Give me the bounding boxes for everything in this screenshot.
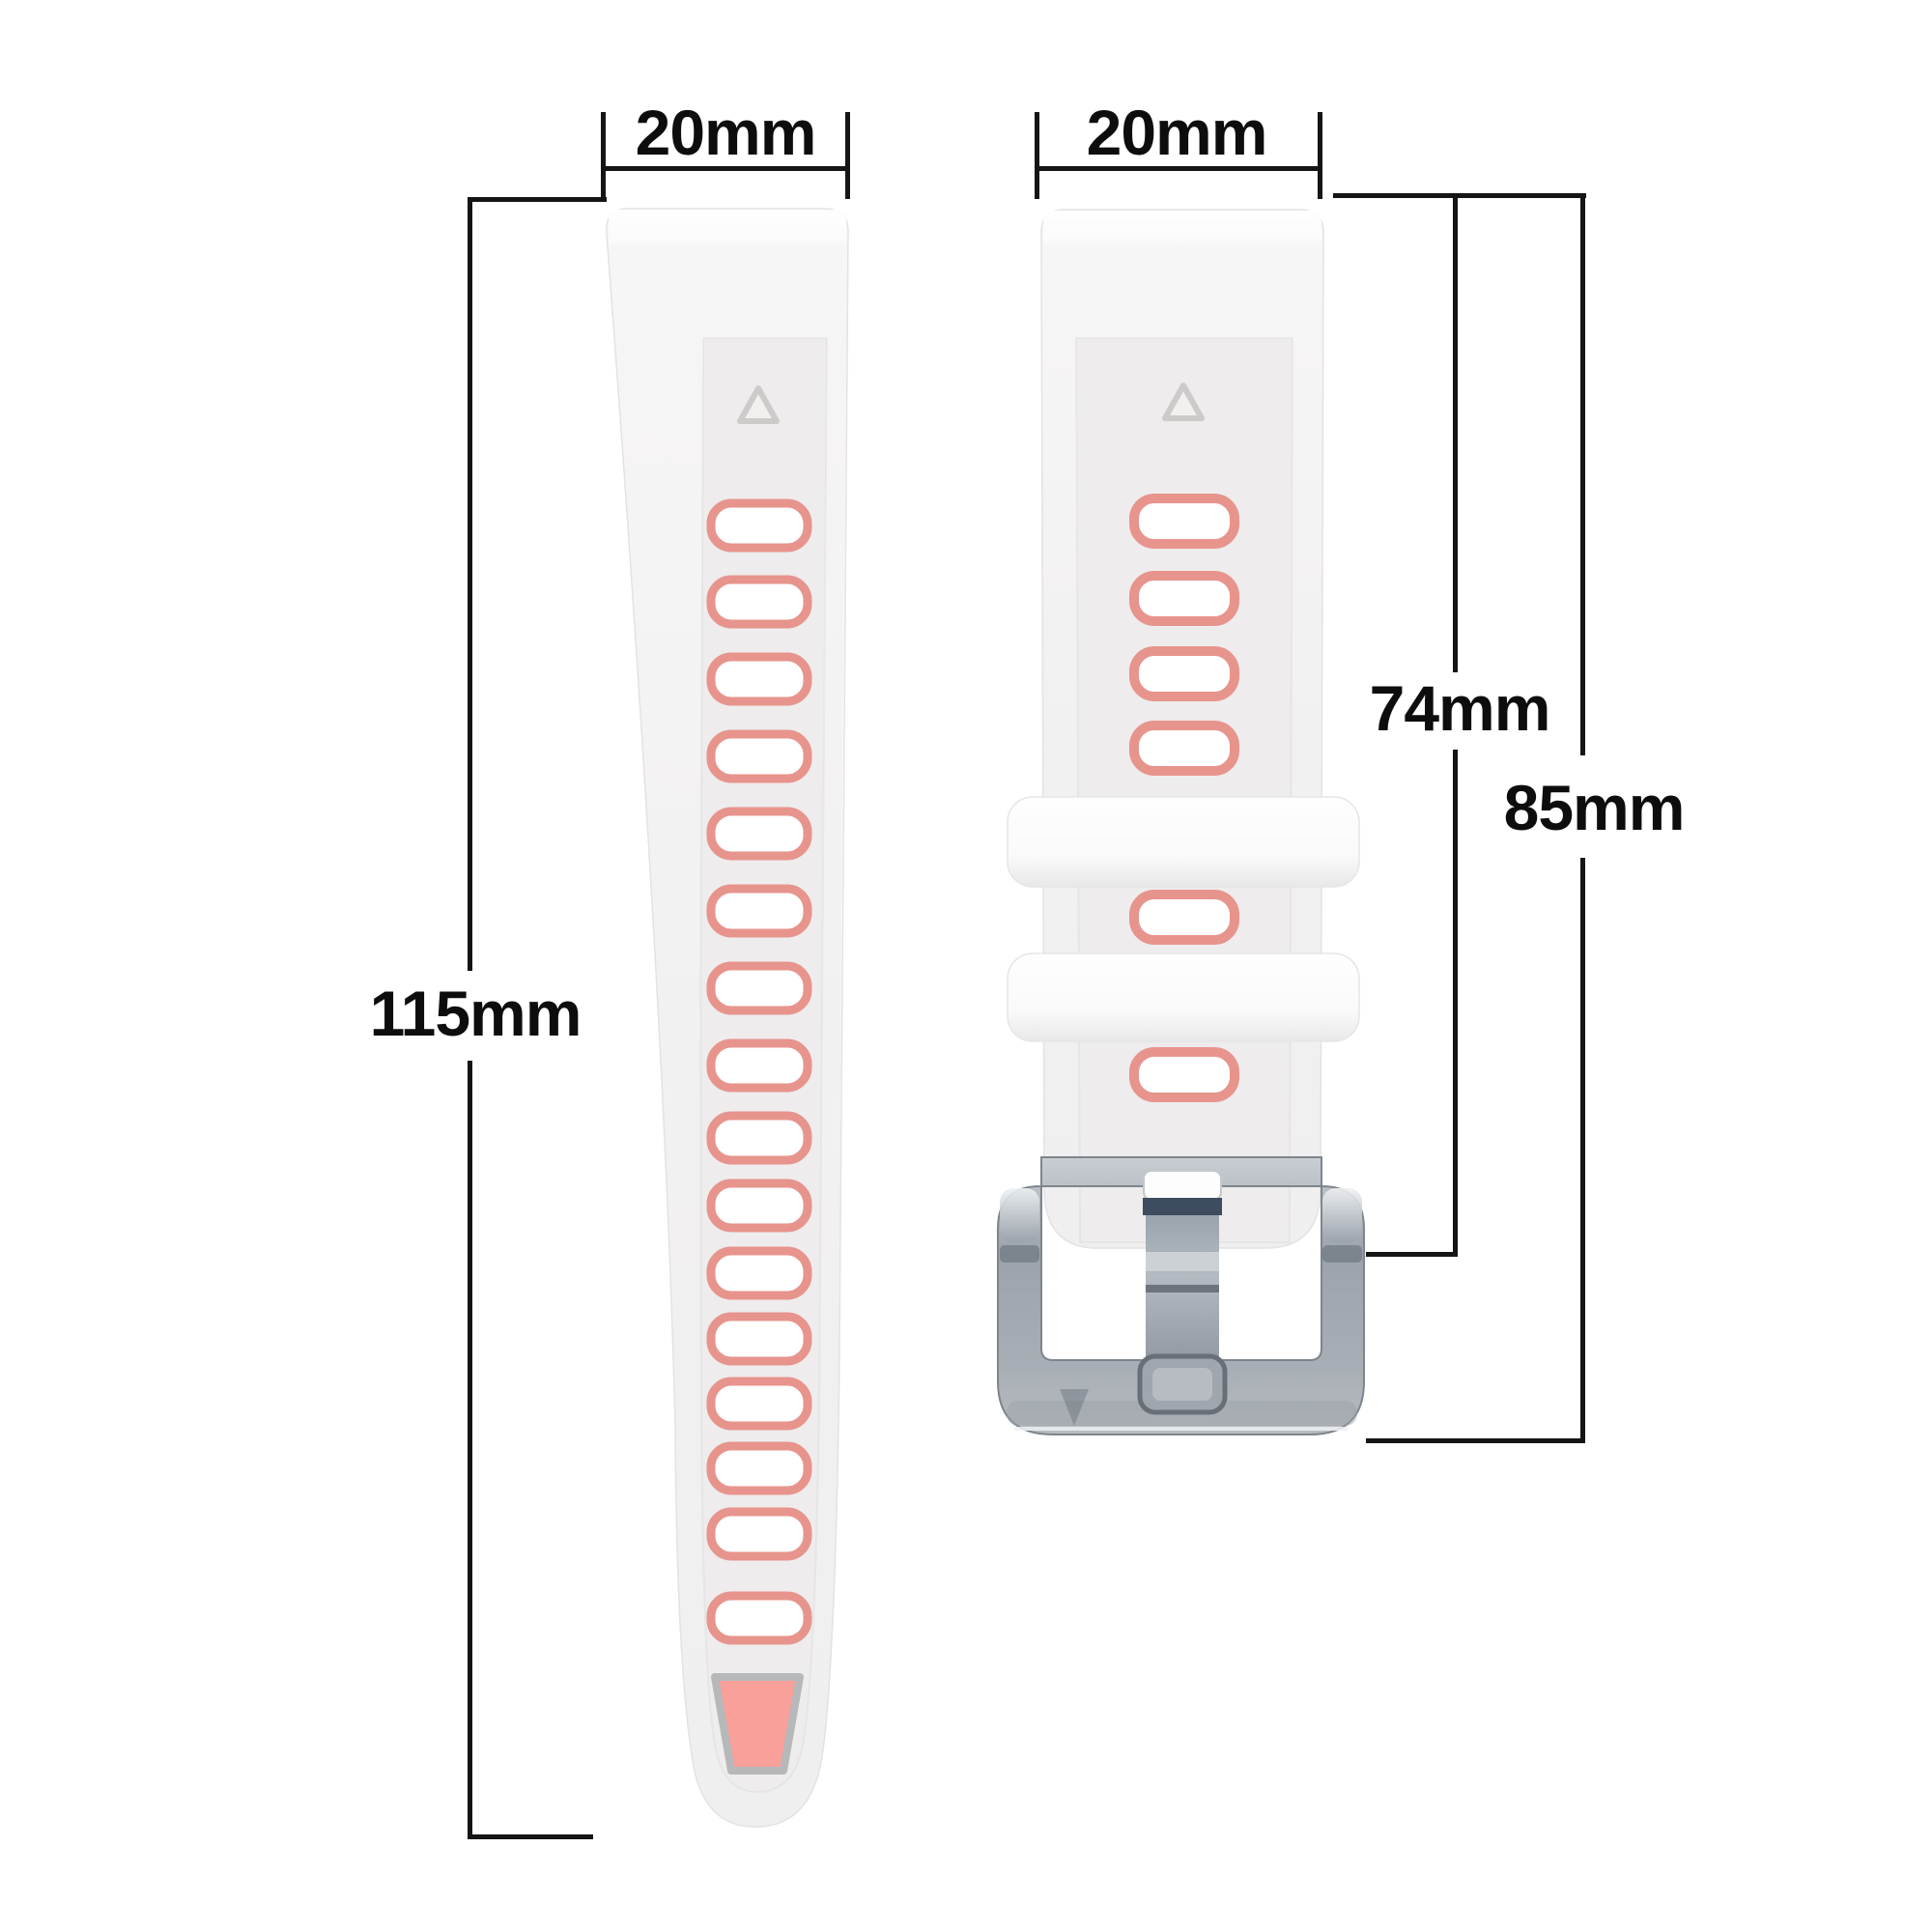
left-length-dim-line-lower <box>468 1061 472 1839</box>
inner-length-dim-line-upper <box>1453 193 1458 672</box>
prong-dark-line <box>1146 1285 1219 1293</box>
keeper-loop-1 <box>1008 797 1359 887</box>
strap-slot <box>711 503 808 548</box>
strap-slot <box>711 1317 808 1361</box>
buckle-arm-shadow-left <box>1000 1245 1039 1263</box>
right-width-label: 20mm <box>1087 96 1267 169</box>
left-strap-pink-tip <box>715 1677 800 1771</box>
strap-slot <box>711 1043 808 1088</box>
prong-dark-band <box>1143 1198 1222 1215</box>
prong-tip-inner <box>1152 1368 1212 1401</box>
left-strap <box>607 209 848 1827</box>
right-width-dim-tick-left <box>1035 112 1039 199</box>
strap-slot <box>1134 651 1235 696</box>
strap-slot <box>711 1512 808 1556</box>
inner-length-dim-line-lower <box>1453 750 1458 1256</box>
outer-length-dim-tick-bottom <box>1366 1438 1585 1443</box>
left-strap-gloss-highlight <box>609 210 846 248</box>
prong-light-band <box>1146 1252 1219 1271</box>
outer-length-dim-line-upper <box>1580 193 1585 755</box>
left-width-dim-tick-left <box>601 112 606 199</box>
strap-slot <box>711 1183 808 1228</box>
strap-slot <box>711 889 808 933</box>
strap-slot <box>1134 576 1235 621</box>
watch-band-illustration <box>0 0 1932 1932</box>
left-width-label: 20mm <box>636 96 816 169</box>
buckle-arm-cap-right <box>1322 1188 1362 1242</box>
right-strap <box>1008 210 1359 1248</box>
right-length-dim-tick-top <box>1333 193 1586 198</box>
prong-white-cap <box>1144 1171 1221 1200</box>
buckle-prong <box>1140 1171 1225 1412</box>
strap-slot <box>711 1381 808 1426</box>
buckle-arm-shadow-right <box>1322 1245 1362 1263</box>
buckle-arm-cap-left <box>1000 1188 1039 1242</box>
strap-slot <box>711 734 808 779</box>
strap-slot <box>1134 725 1235 771</box>
strap-slot <box>1134 895 1235 940</box>
outer-length-dim-line-lower <box>1580 858 1585 1443</box>
strap-slot <box>711 1251 808 1295</box>
strap-slot <box>711 811 808 856</box>
right-strap-gloss-highlight <box>1043 211 1321 249</box>
outer-length-label: 85mm <box>1504 771 1685 844</box>
strap-slot <box>711 580 808 624</box>
strap-slot <box>711 966 808 1010</box>
inner-length-label: 74mm <box>1370 671 1550 745</box>
left-length-label: 115mm <box>370 977 582 1050</box>
strap-slot <box>711 1446 808 1491</box>
strap-slot <box>1134 1052 1235 1097</box>
left-length-dim-tick-bottom <box>469 1834 593 1839</box>
left-length-dim-line-upper <box>468 197 472 971</box>
inner-length-dim-tick-bottom <box>1366 1252 1458 1257</box>
strap-slot <box>711 1116 808 1160</box>
strap-slot <box>711 1596 808 1640</box>
right-width-dim-tick-right <box>1318 112 1322 199</box>
left-strap-slots <box>711 503 808 1640</box>
strap-slot <box>711 657 808 701</box>
right-strap-inner-panel <box>1076 338 1293 1242</box>
buckle-bar-bottom-highlight <box>1014 1427 1349 1431</box>
left-width-dim-tick-right <box>845 112 850 199</box>
diagram-canvas: 20mm 20mm 115mm 74mm 85mm <box>0 0 1932 1932</box>
keeper-loop-2 <box>1008 953 1359 1041</box>
left-length-dim-tick-top <box>469 197 607 202</box>
strap-slot <box>1134 498 1235 544</box>
